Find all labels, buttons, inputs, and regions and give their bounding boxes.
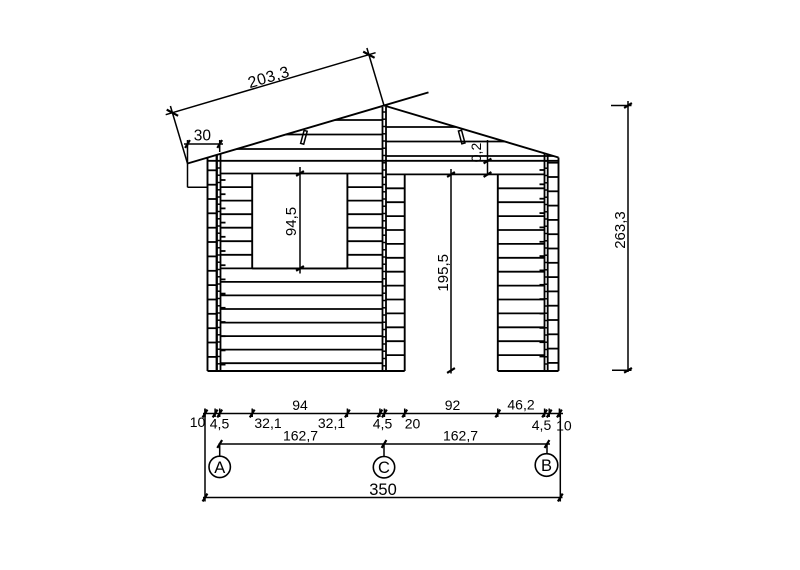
svg-text:94,5: 94,5 — [283, 207, 300, 236]
svg-text:B: B — [541, 457, 552, 475]
svg-text:20: 20 — [405, 416, 421, 432]
svg-text:10: 10 — [190, 414, 206, 430]
svg-text:263,3: 263,3 — [612, 211, 629, 249]
svg-text:94: 94 — [292, 397, 308, 413]
svg-text:4,5: 4,5 — [210, 416, 230, 432]
svg-text:4,5: 4,5 — [532, 417, 552, 433]
svg-text:A: A — [214, 459, 225, 477]
svg-text:162,7: 162,7 — [283, 428, 318, 444]
svg-text:4,5: 4,5 — [373, 416, 393, 432]
svg-text:30: 30 — [194, 128, 212, 145]
svg-text:10: 10 — [556, 418, 572, 434]
svg-text:350: 350 — [369, 481, 397, 499]
svg-text:162,7: 162,7 — [443, 428, 478, 444]
svg-text:C: C — [378, 459, 390, 477]
svg-text:92: 92 — [445, 397, 461, 413]
svg-text:32,1: 32,1 — [318, 415, 345, 431]
svg-text:46,2: 46,2 — [507, 397, 534, 413]
svg-text:0,2: 0,2 — [468, 143, 484, 163]
svg-text:32,1: 32,1 — [254, 415, 281, 431]
svg-text:195,5: 195,5 — [435, 254, 452, 292]
